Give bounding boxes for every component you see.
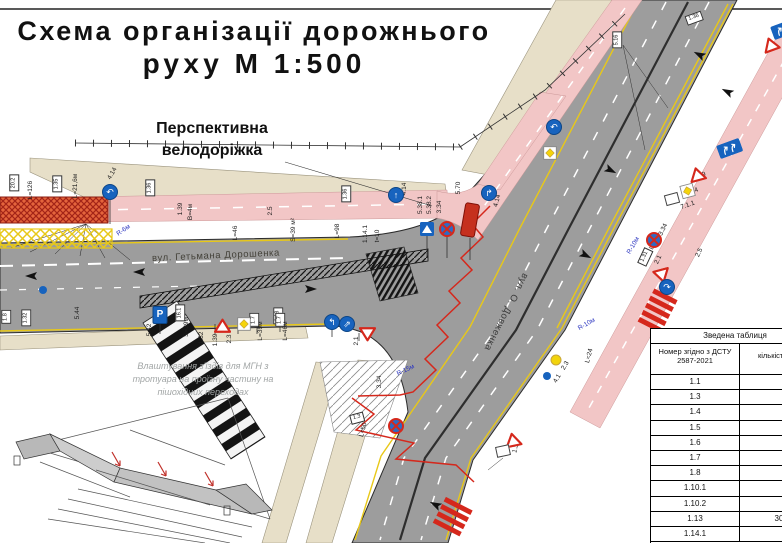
no-stopping-sign-icon: [439, 221, 455, 237]
table-row: 1.14.1: [651, 527, 782, 542]
table-row: 1.3: [651, 390, 782, 405]
marking-code-label: 5.70: [456, 182, 463, 195]
arrow-icon: ↶: [550, 123, 558, 132]
future-bikeway-callout: Перспективна велодоріжка: [126, 118, 298, 161]
marking-code-label: S=39м: [184, 317, 191, 337]
quantity-cell: [740, 421, 782, 435]
sign-code-cell: 1.4: [651, 405, 740, 419]
marking-code-label: 5.42: [147, 324, 154, 337]
marking-code-label: 1.39: [213, 334, 220, 347]
arrow-icon: ↶: [106, 188, 114, 197]
mgn-ramp-note-line3: пішохідних переходах: [103, 386, 303, 399]
blue-sign-marker-icon: [543, 372, 551, 380]
table-row: 1.1330: [651, 512, 782, 527]
quantity-cell: [740, 436, 782, 450]
table-row: 1.10.2: [651, 497, 782, 512]
marking-code-label: L=98: [335, 224, 342, 239]
bus-stop-marking: [0, 229, 112, 248]
crossing-triangle-icon: [422, 225, 432, 233]
arrow-icon: ↷: [663, 283, 671, 292]
pedestrian-bike-path-sign-icon: ↑: [388, 187, 404, 203]
mgn-ramp-note-line2: тротуара на проїзну частину на: [103, 373, 303, 386]
arrow-icon: ⇗: [343, 320, 351, 329]
quantity-cell: [740, 405, 782, 419]
marking-code-label: 5.38.1: [418, 196, 425, 214]
table-row: 1.5: [651, 421, 782, 436]
sign-code-cell: 1.6: [651, 436, 740, 450]
parking-letter-icon: P: [157, 310, 164, 320]
mgn-ramp-note: Влаштування з'їздів для МГН з тротуара н…: [103, 360, 303, 399]
summary-table-rows: 1.11.31.41.51.61.71.81.10.11.10.21.13301…: [651, 375, 782, 542]
pedestrian-bike-path-sign-icon: ↱: [481, 185, 497, 201]
marking-code-label: 5.44: [75, 307, 82, 320]
mgn-ramp-note-line1: Влаштування з'їздів для МГН з: [103, 360, 303, 373]
pedestrian-bike-path-sign-icon: ↶: [102, 184, 118, 200]
sign-code-cell: 1.14.1: [651, 527, 740, 541]
sign-code-cell: 1.8: [651, 466, 740, 480]
parking-sign-icon: P: [153, 306, 168, 324]
no-stopping-sign-icon: [646, 232, 662, 248]
marking-code-label: t=10: [375, 230, 382, 243]
marking-code-label: 2.3: [227, 334, 234, 343]
sign-code-cell: 1.3: [651, 390, 740, 404]
traffic-scheme-drawing: Схема організації дорожнього руху М 1:50…: [0, 0, 782, 543]
sign-code-plate: 1.32: [21, 310, 31, 327]
page-title: Схема організації дорожнього руху М 1:50…: [0, 15, 508, 81]
mandatory-direction-sign-icon: ⇗: [339, 316, 355, 332]
marking-code-label: 1.14.1: [363, 225, 370, 243]
sign-code-cell: 1.1: [651, 375, 740, 389]
mandatory-direction-sign-icon: ↶: [546, 119, 562, 135]
quantity-cell: [740, 497, 782, 511]
future-bikeway-callout-line1: Перспективна: [126, 118, 298, 140]
sign-code-cell: 1.10.2: [651, 497, 740, 511]
mandatory-direction-sign-icon: ↷: [659, 279, 675, 295]
sign-code-plate: 5.16: [612, 32, 622, 49]
marking-code-label: 3.34: [437, 201, 444, 214]
blue-sign-marker-icon: [39, 286, 47, 294]
sign-code-plate: 1.35: [52, 176, 62, 193]
quantity-cell: 30: [740, 512, 782, 526]
marking-code-label: 2.5: [268, 206, 275, 215]
table-row: 1.4: [651, 405, 782, 420]
arrow-icon: ↰: [328, 318, 336, 327]
marking-code-label: L=39м: [258, 321, 265, 340]
table-row: 1.1: [651, 375, 782, 390]
marking-code-label: L=46: [233, 226, 240, 241]
arrow-icon: ↑: [394, 191, 399, 200]
marking-code-label: L=21,6м: [73, 174, 80, 199]
sign-code-plate: 1.8: [1, 310, 11, 324]
summary-table: Зведена таблиця Номер згідно з ДСТУ 2587…: [650, 328, 782, 543]
summary-table-header: Номер згідно з ДСТУ 2587-2021 кількість …: [651, 344, 782, 375]
marking-code-label: L=126: [28, 181, 35, 199]
priority-sign-marker-icon: [551, 355, 562, 366]
marking-code-label: 3.34: [377, 376, 384, 389]
marking-code-label: S=39 м²: [291, 218, 298, 242]
summary-table-title: Зведена таблиця: [651, 329, 782, 344]
arrow-icon: ↱: [485, 189, 493, 198]
marking-code-label: В=4м: [188, 204, 195, 220]
sign-code-cell: 1.7: [651, 451, 740, 465]
sign-code-plate: 1.36: [341, 186, 351, 203]
table-row: 1.10.1: [651, 481, 782, 496]
future-bikeway-callout-line2: велодоріжка: [126, 140, 298, 162]
quantity-cell: [740, 451, 782, 465]
page-title-line1: Схема організації дорожнього: [0, 15, 508, 47]
marking-code-label: 5.38.2: [427, 196, 434, 214]
summary-table-col-number: Номер згідно з ДСТУ 2587-2021: [651, 344, 740, 374]
marking-code-label: L=46м: [283, 321, 290, 340]
sign-code-cell: 1.13: [651, 512, 740, 526]
quantity-cell: [740, 390, 782, 404]
sign-code-plate: 20.2: [9, 175, 19, 192]
pedestrian-crossing-sign-icon: [420, 222, 434, 236]
quantity-cell: [740, 527, 782, 541]
marking-code-label: 1.39: [178, 203, 185, 216]
quantity-cell: [740, 466, 782, 480]
sign-code-cell: 1.5: [651, 421, 740, 435]
marking-code-label: 1.32: [199, 332, 206, 345]
quantity-cell: [740, 375, 782, 389]
sign-code-cell: 1.10.1: [651, 481, 740, 495]
mandatory-direction-sign-icon: ↰: [324, 314, 340, 330]
page-title-line2: руху М 1:500: [0, 47, 508, 81]
table-row: 1.7: [651, 451, 782, 466]
table-row: 1.6: [651, 436, 782, 451]
table-row: 1.8: [651, 466, 782, 481]
sign-code-plate: 1.36: [145, 180, 155, 197]
summary-table-col-qty: кількість шт.: [740, 344, 782, 374]
quantity-cell: [740, 481, 782, 495]
no-stopping-sign-icon: [388, 418, 404, 434]
